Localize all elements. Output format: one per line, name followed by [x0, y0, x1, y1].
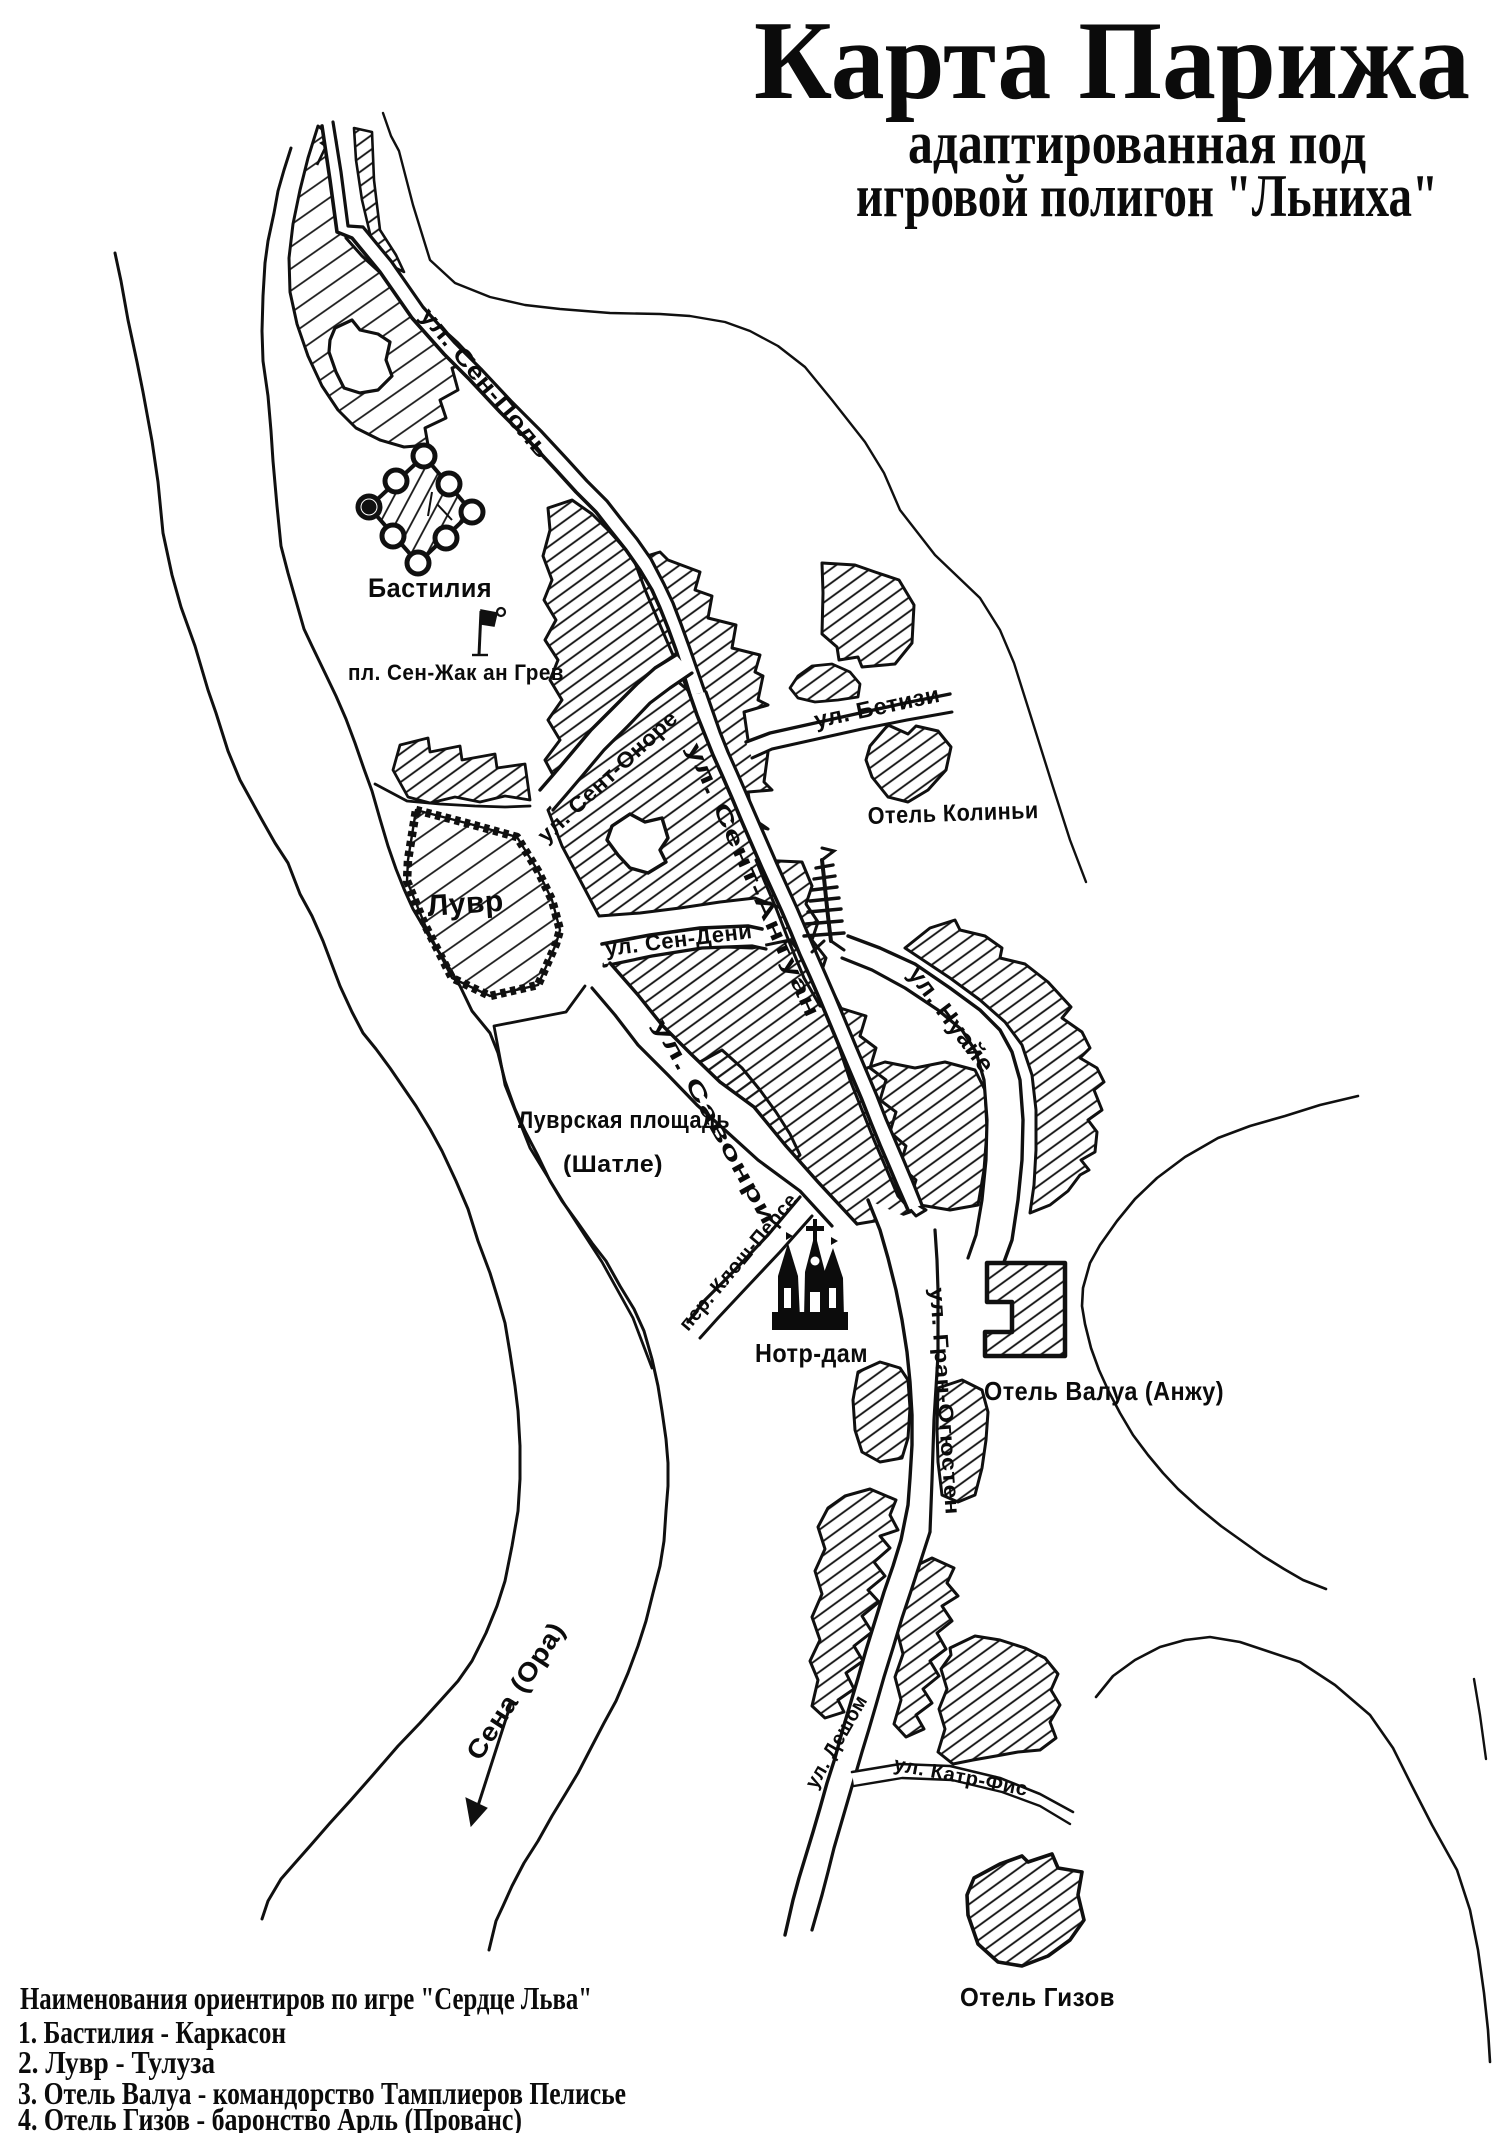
svg-text:Бастилия: Бастилия [368, 573, 492, 603]
svg-text:Наименования ориентиров по игр: Наименования ориентиров по игре "Сердце … [20, 1980, 592, 2016]
svg-text:Луврская площадь: Луврская площадь [518, 1107, 730, 1134]
svg-text:Лувр: Лувр [426, 885, 505, 923]
svg-text:Отель Валуа (Анжу): Отель Валуа (Анжу) [984, 1376, 1224, 1406]
svg-text:Карта Парижа: Карта Парижа [754, 0, 1470, 123]
svg-text:Нотр-дам: Нотр-дам [755, 1338, 868, 1368]
svg-text:Отель Гизов: Отель Гизов [960, 1982, 1115, 2012]
svg-text:пл. Сен-Жак ан Грев: пл. Сен-Жак ан Грев [348, 660, 564, 685]
svg-text:игровой полигон "Льниха": игровой полигон "Льниха" [856, 163, 1438, 229]
svg-text:(Шатле): (Шатле) [563, 1151, 663, 1178]
svg-text:4. Отель Гизов - баронство Арл: 4. Отель Гизов - баронство Арль (Прованс… [18, 2101, 522, 2133]
